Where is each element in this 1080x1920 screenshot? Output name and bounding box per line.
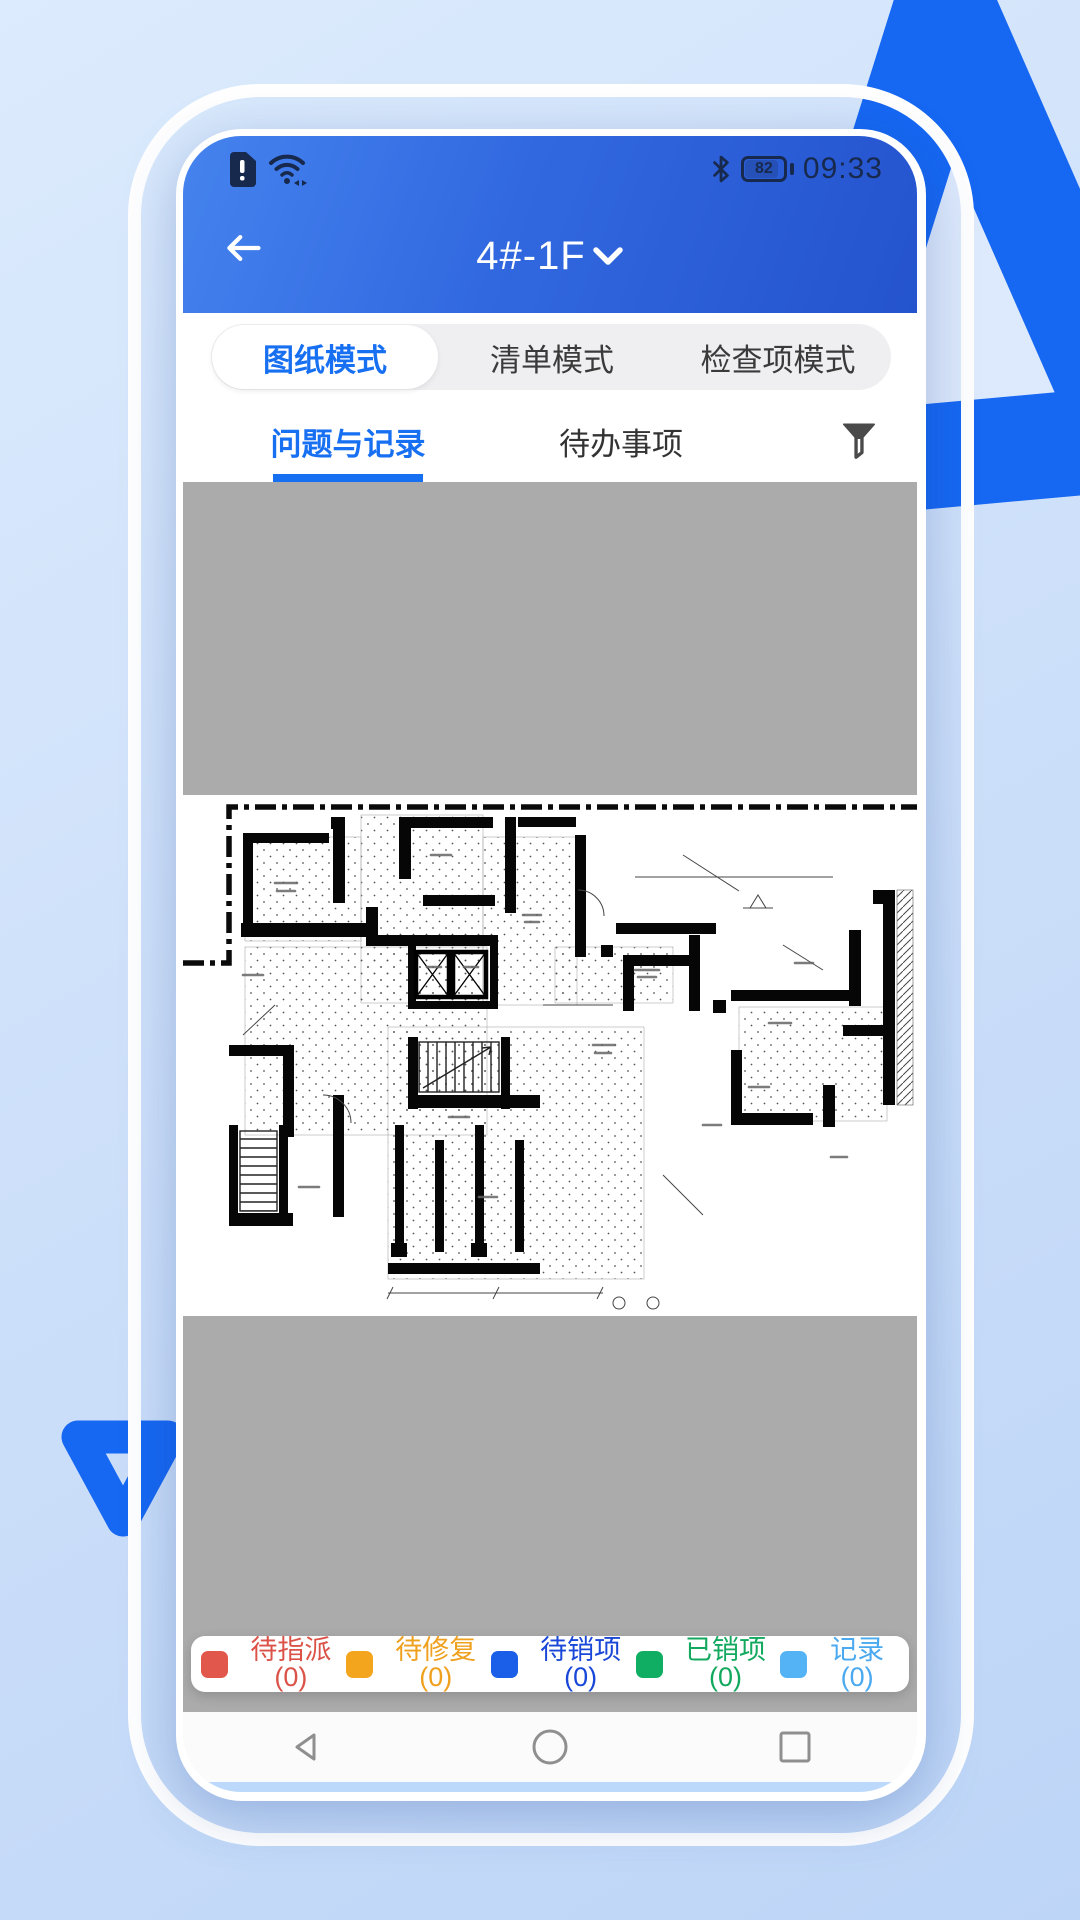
triangle-back-icon	[290, 1731, 320, 1763]
nav-back-button[interactable]	[183, 1712, 428, 1782]
android-nav-bar	[183, 1712, 917, 1782]
legend-item-closed[interactable]: 已销项(0)	[636, 1637, 781, 1691]
screen-bottom-strip	[183, 1782, 917, 1792]
status-bar-right: 82 09:33	[710, 152, 883, 186]
legend-swatch	[201, 1651, 228, 1678]
mode-tab-bar: 图纸模式 清单模式 检查项模式	[183, 313, 917, 400]
battery-icon: 82	[741, 156, 787, 182]
legend-item-pending-fix[interactable]: 待修复(0)	[346, 1637, 491, 1691]
status-bar: 82 09:33	[183, 148, 917, 194]
legend-swatch	[636, 1651, 663, 1678]
floor-selector[interactable]: 4#-1F	[183, 200, 917, 313]
square-recents-icon	[778, 1730, 812, 1764]
status-bar-left	[227, 150, 311, 188]
circle-home-icon	[531, 1728, 569, 1766]
legend-label: 待销项(0)	[526, 1637, 636, 1691]
tab-list-mode[interactable]: 清单模式	[439, 324, 665, 390]
legend-swatch	[346, 1651, 373, 1678]
app-header: 82 09:33 4#-1F	[183, 136, 917, 313]
legend-swatch	[780, 1651, 807, 1678]
tab-issues-records[interactable]: 问题与记录	[268, 400, 428, 482]
battery-percent: 82	[755, 161, 773, 177]
status-legend: 待指派(0) 待修复(0) 待销项(0) 已销项(0) 记录(0)	[191, 1636, 909, 1692]
page-title: 4#-1F	[476, 234, 586, 279]
legend-label: 已销项(0)	[671, 1637, 781, 1691]
funnel-icon	[843, 420, 875, 464]
title-bar: 4#-1F	[183, 200, 917, 313]
sub-tab-bar: 问题与记录 待办事项	[183, 400, 917, 482]
battery-nub	[790, 163, 794, 175]
canvas-area-top	[183, 482, 917, 795]
legend-label: 待指派(0)	[236, 1637, 346, 1691]
status-time: 09:33	[803, 152, 883, 186]
legend-swatch	[491, 1651, 518, 1678]
floor-plan-container[interactable]	[183, 795, 917, 1316]
floor-plan-drawing	[183, 795, 917, 1316]
tab-checkitem-mode[interactable]: 检查项模式	[665, 324, 891, 390]
phone-screen: 82 09:33 4#-1F 图纸模式 清单模式	[183, 136, 917, 1792]
legend-item-pending-close[interactable]: 待销项(0)	[491, 1637, 636, 1691]
legend-label: 记录(0)	[815, 1637, 899, 1691]
segmented-control: 图纸模式 清单模式 检查项模式	[211, 324, 891, 390]
tab-issues-records-label: 问题与记录	[271, 419, 426, 464]
sim-alert-icon	[227, 151, 257, 187]
tab-todo-items-label: 待办事项	[559, 419, 683, 464]
tab-todo-items[interactable]: 待办事项	[541, 400, 701, 482]
legend-label: 待修复(0)	[381, 1637, 491, 1691]
active-tab-underline	[273, 474, 423, 482]
nav-home-button[interactable]	[428, 1712, 673, 1782]
wifi-icon	[267, 150, 311, 188]
legend-item-pending-assign[interactable]: 待指派(0)	[201, 1637, 346, 1691]
legend-item-record[interactable]: 记录(0)	[780, 1637, 899, 1691]
filter-button[interactable]	[837, 418, 881, 466]
bluetooth-icon	[710, 153, 732, 185]
tab-drawing-mode[interactable]: 图纸模式	[212, 325, 438, 389]
chevron-down-icon	[592, 246, 624, 268]
nav-recents-button[interactable]	[672, 1712, 917, 1782]
